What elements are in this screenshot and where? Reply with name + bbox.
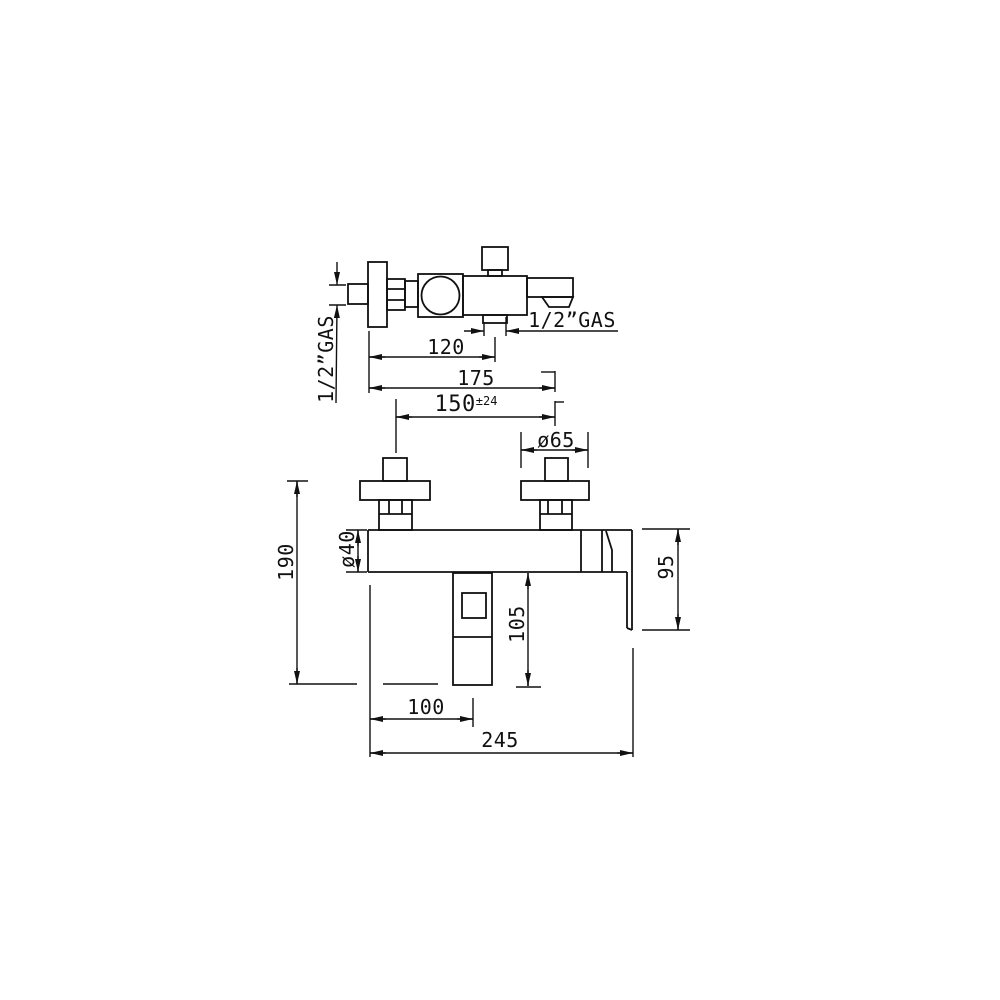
dim-label-150-tol: 150±24 [435,394,498,416]
lever-handle [606,530,632,630]
wall-pipe [348,284,368,304]
dim-label-150-tolerance: ±24 [476,394,498,408]
dim-label-175: 175 [457,368,495,388]
right-rosette [521,481,589,500]
diverter-neck [488,270,502,276]
dim-label-120: 120 [427,337,465,357]
cartridge-housing [418,274,463,317]
diverter-knob [482,247,508,270]
hex-nut [387,279,405,310]
right-inlet-cap [545,458,568,481]
outlet-window [462,593,486,618]
handshower-outlet [453,573,492,685]
dim-label-190: 190 [276,543,296,581]
right-hex-neck [540,500,572,530]
dim-label-100: 100 [407,697,445,717]
shower-outlet-stub [483,315,507,323]
dimension-lines [287,262,690,757]
dim-label-dia40: ø40 [337,530,357,568]
front-view-drawing [360,458,632,685]
mixer-body-top [463,276,527,315]
dim-label-95: 95 [656,554,676,579]
dim-label-150: 150 [435,392,476,417]
spout-lip [542,297,573,307]
left-rosette [360,481,430,500]
dim-label-gas-shower-outlet: 1/2”GAS [528,310,616,330]
wall-flange [368,262,387,327]
mixer-body-front [368,530,632,572]
dim-label-dia65: ø65 [537,430,575,450]
dim-label-105: 105 [507,605,527,643]
spout [527,278,573,297]
dim-label-245: 245 [481,730,519,750]
left-inlet-cap [383,458,407,481]
left-hex-neck [379,500,412,530]
dim-label-gas-inlet: 1/2”GAS [316,315,336,403]
cartridge-circle [422,277,460,315]
technical-drawing-canvas [0,0,1000,1000]
collar [405,281,418,307]
faucet-technical-drawing-page: 1/2”GAS 1/2”GAS 120 175 150±24 ø65 ø40 1… [0,0,1000,1000]
